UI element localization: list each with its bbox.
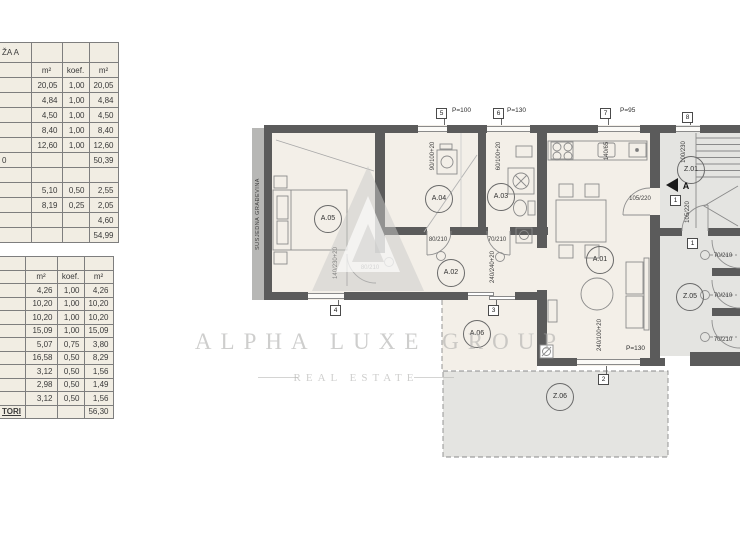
marker-tick [608, 118, 609, 125]
dim-label: 80/210 [429, 237, 447, 243]
marker-tick [606, 366, 607, 374]
room-label-z05: Z.05 [676, 283, 704, 311]
floorplan-page: ŽA A m² koef. m² 20,051,0020,05 4,841,00… [0, 0, 740, 550]
dim-label: 70/210 [714, 253, 732, 259]
room-label-a03: A.03 [487, 183, 515, 211]
dim-label: 140/230+20 [333, 247, 339, 279]
dim-label: 80/210 [361, 265, 379, 271]
dim-label: 70/210 [488, 237, 506, 243]
entrance-letter: A [683, 181, 690, 191]
dim-label: 140/65 [604, 142, 610, 160]
position-marker: 3 [488, 305, 499, 316]
parapet-label: P=100 [452, 107, 471, 114]
position-marker: 5 [436, 108, 447, 119]
room-label-a05: A.05 [314, 205, 342, 233]
room-label-z06: Z.06 [546, 383, 574, 411]
position-marker: 4 [330, 305, 341, 316]
marker-tick [501, 118, 502, 125]
dim-label: 240/240+20 [490, 251, 496, 283]
position-marker: 1 [687, 238, 698, 249]
dim-label: 70/210 [714, 293, 732, 299]
stairs [696, 133, 740, 228]
dim-label: 105/220 [629, 196, 651, 202]
parapet-label: P=95 [620, 107, 635, 114]
position-marker: 6 [493, 108, 504, 119]
entrance-arrow-icon [666, 178, 678, 192]
marker-tick [444, 118, 445, 125]
wardrobe-line [276, 140, 374, 171]
dim-label: 100/230 [681, 141, 687, 163]
drain-symbol [540, 345, 553, 358]
position-marker: 2 [598, 374, 609, 385]
room-label-a06: A.06 [463, 320, 491, 348]
dim-label: 240/100+20 [597, 319, 603, 351]
dim-label: 60/100+20 [496, 142, 502, 171]
parapet-label: P=130 [507, 107, 526, 114]
room-label-a01: A.01 [586, 246, 614, 274]
parapet-label: P=130 [626, 345, 645, 352]
position-marker: 8 [682, 112, 693, 123]
room-label-a04: A.04 [425, 185, 453, 213]
dim-label: 105/220 [685, 201, 691, 223]
kitchen-counter [548, 141, 647, 160]
door-arcs [347, 188, 740, 348]
plan-linework [0, 0, 740, 550]
room-label-a02: A.02 [437, 259, 465, 287]
dim-label: 70/210 [714, 337, 732, 343]
dim-label: 90/100+20 [430, 142, 436, 171]
position-marker: 7 [600, 108, 611, 119]
position-marker: 1 [670, 195, 681, 206]
